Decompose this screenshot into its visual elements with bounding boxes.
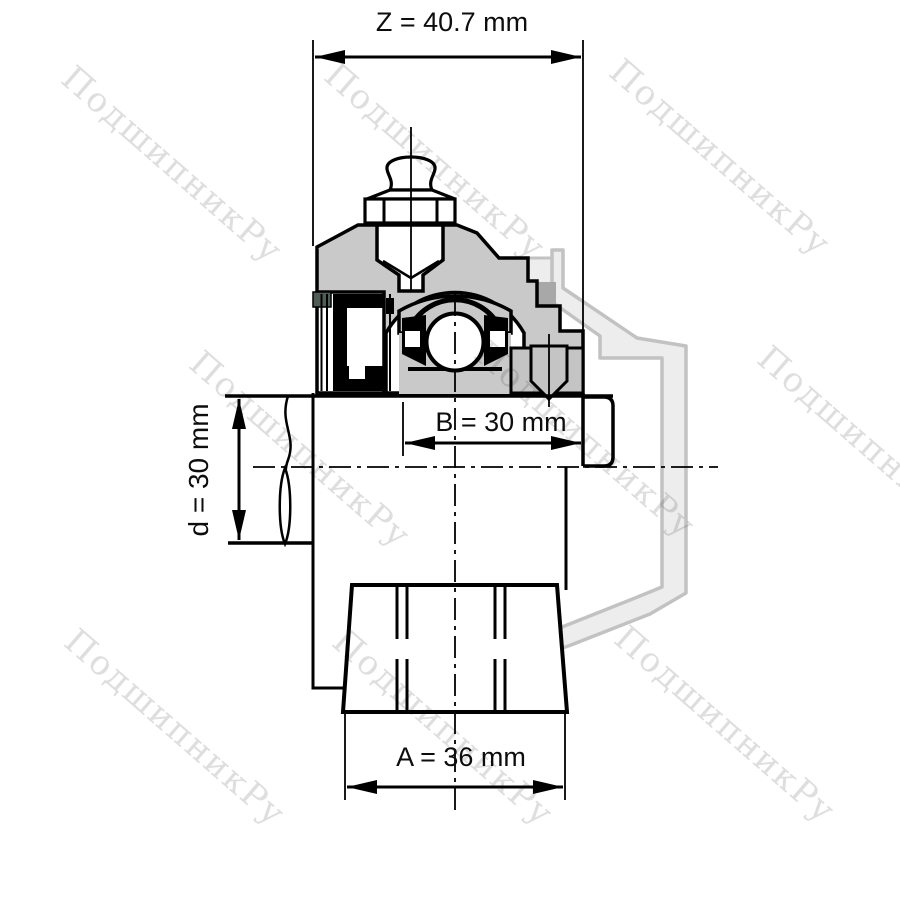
housing-rear-left-edge <box>313 393 345 688</box>
right-seal-notch <box>490 331 505 347</box>
drawing-canvas: Z = 40.7 mm B = 30 mm d = 30 mm A = 36 m… <box>0 0 900 900</box>
dimension-d: d = 30 mm <box>183 399 239 540</box>
shaft-break-lens <box>280 468 291 544</box>
bearing-unit-technical-drawing: Z = 40.7 mm B = 30 mm d = 30 mm A = 36 m… <box>0 0 900 900</box>
set-screw-collar <box>511 334 613 466</box>
left-seal-notch <box>405 331 420 347</box>
flange-base <box>313 393 567 712</box>
sleeve-end <box>583 397 613 466</box>
phantom-seal-block <box>537 282 556 306</box>
dimension-d-label: d = 30 mm <box>183 403 214 536</box>
seal-corner-block <box>386 298 394 314</box>
phantom-flange-profile <box>552 250 686 650</box>
dimension-b-label: B = 30 mm <box>435 407 566 437</box>
dimension-z-label: Z = 40.7 mm <box>376 7 528 37</box>
dimension-a-label: A = 36 mm <box>396 742 526 772</box>
collar-notch <box>349 366 365 379</box>
grease-nipple-hex <box>365 199 455 223</box>
dimension-b: B = 30 mm <box>403 402 581 456</box>
